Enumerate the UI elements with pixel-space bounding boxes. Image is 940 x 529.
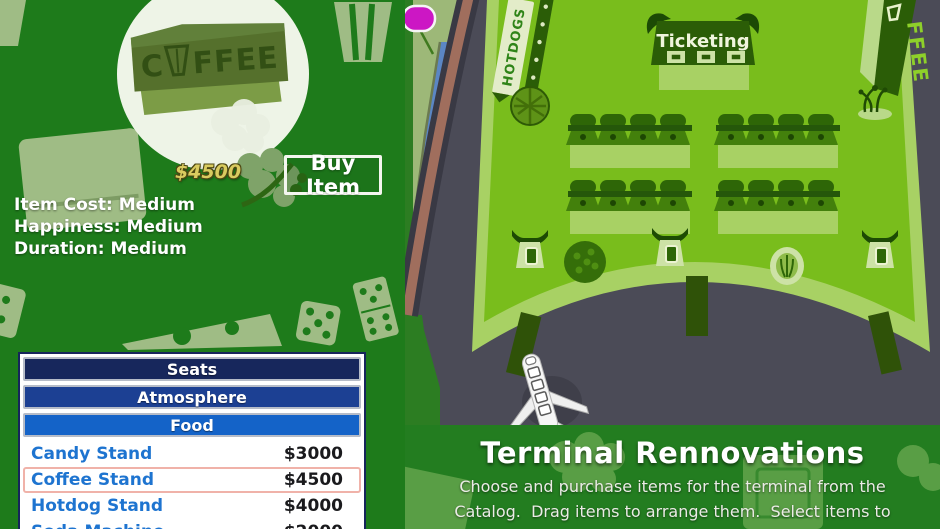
catalog-category-atmosphere[interactable]: Atmosphere: [23, 385, 361, 409]
item-price: $4500: [284, 470, 343, 490]
popcorn-cup-icon: [334, 2, 392, 62]
die-icon: [0, 282, 27, 339]
die-icon: [295, 300, 341, 346]
domino-icon: [352, 276, 400, 342]
item-preview-circle: [117, 0, 309, 170]
catalog-item-row[interactable]: Hotdog Stand$4000: [23, 493, 361, 519]
cup-icon: [0, 0, 26, 46]
info-panel-description-line: Choose and purchase items for the termin…: [405, 474, 940, 499]
catalog-panel: C FFEE $4500 Buy Item: [0, 0, 405, 529]
catalog-table: SeatsAtmosphereFood Candy Stand$3000Coff…: [18, 352, 366, 529]
game-screen: C FFEE $4500 Buy Item: [0, 0, 940, 529]
item-price: $4000: [284, 496, 343, 516]
item-name: Hotdog Stand: [31, 496, 163, 516]
bush-icon: [511, 87, 549, 125]
cheese-icon: [122, 314, 282, 350]
catalog-category-food[interactable]: Food: [23, 413, 361, 437]
stat-duration: Duration: Medium: [14, 238, 203, 260]
item-price-label: $4500: [156, 161, 260, 183]
info-panel-title: Terminal Rennovations: [405, 436, 940, 470]
catalog-category-seats[interactable]: Seats: [23, 357, 361, 381]
buy-item-button[interactable]: Buy Item: [284, 155, 382, 195]
stat-item-cost: Item Cost: Medium: [14, 194, 203, 216]
coffee-banner-sign: FFEE: [860, 0, 933, 96]
catalog-item-row[interactable]: Soda Machine$2000: [23, 519, 361, 529]
stat-happiness: Happiness: Medium: [14, 216, 203, 238]
item-name: Coffee Stand: [31, 470, 154, 490]
ticketing-booth: Ticketing: [647, 13, 759, 90]
plant-icon: [564, 241, 606, 283]
item-name: Soda Machine: [31, 522, 165, 529]
item-price: $3000: [284, 444, 343, 464]
info-panel: Terminal Rennovations Choose and purchas…: [405, 425, 940, 529]
item-price: $2000: [284, 522, 343, 529]
rug-icon: [770, 247, 804, 285]
item-name: Candy Stand: [31, 444, 152, 464]
catalog-item-row[interactable]: Coffee Stand$4500: [23, 467, 361, 493]
info-panel-description-line: Catalog. Drag items to arrange them. Sel…: [405, 499, 940, 524]
terminal-view: Ticketing HOTDOGS: [405, 0, 940, 529]
ticketing-sign-label: Ticketing: [656, 31, 749, 52]
catalog-items: Candy Stand$3000Coffee Stand$4500Hotdog …: [23, 441, 361, 529]
item-stats: Item Cost: Medium Happiness: Medium Dura…: [14, 194, 203, 260]
jet-bridge: [686, 276, 708, 336]
map-pin-button[interactable]: [405, 6, 435, 31]
catalog-item-row[interactable]: Candy Stand$3000: [23, 441, 361, 467]
catalog-categories: SeatsAtmosphereFood: [23, 357, 361, 437]
ticket-windows: [667, 51, 745, 63]
